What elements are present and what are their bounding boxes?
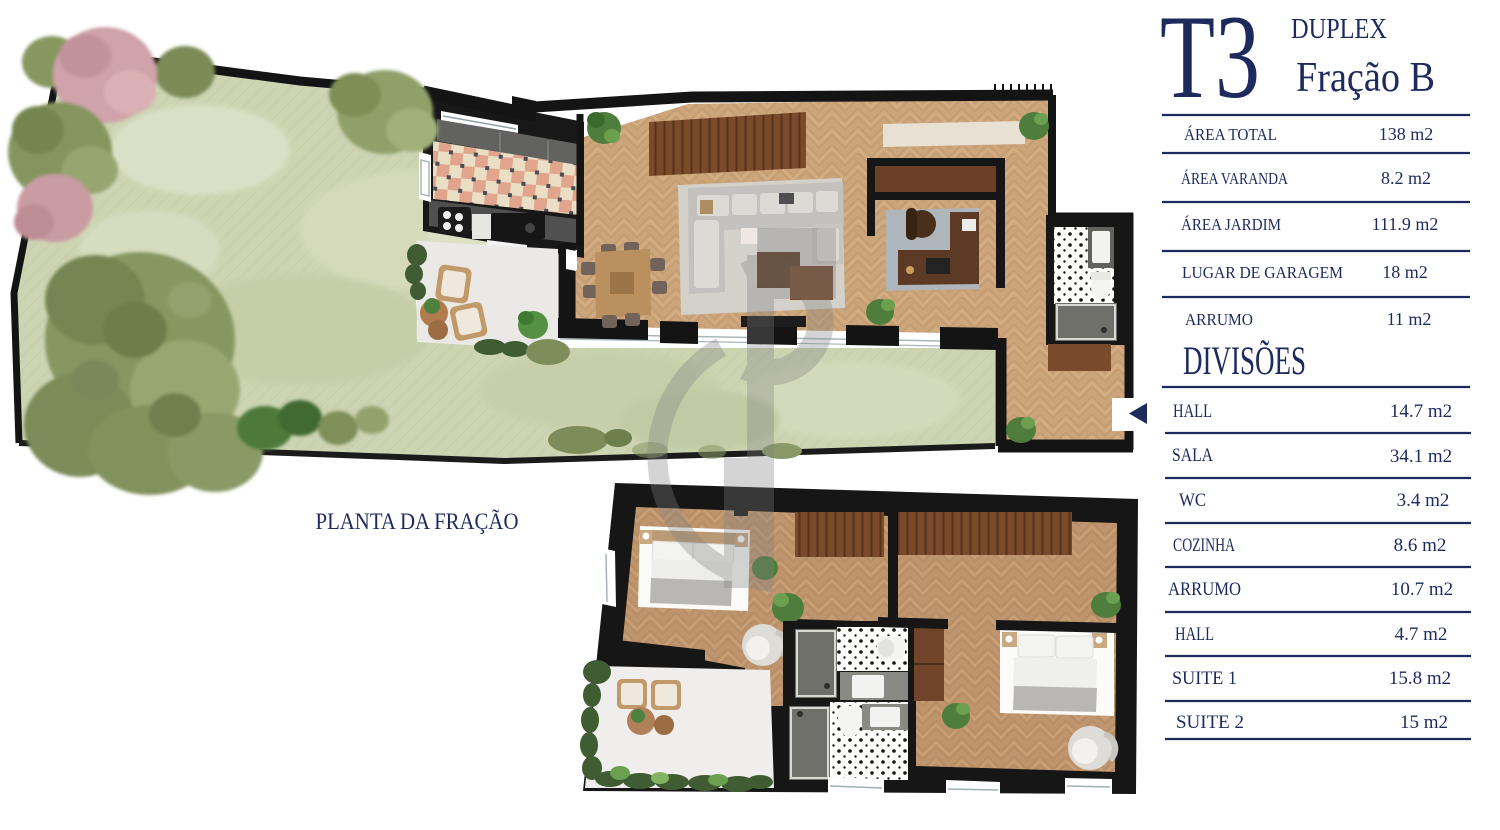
svg-text:SALA: SALA <box>1172 445 1213 466</box>
svg-text:11 m2: 11 m2 <box>1387 309 1432 329</box>
svg-text:8.2 m2: 8.2 m2 <box>1381 168 1431 188</box>
svg-text:ARRUMO: ARRUMO <box>1168 579 1241 600</box>
svg-text:18 m2: 18 m2 <box>1382 262 1428 282</box>
svg-text:Fração B: Fração B <box>1296 55 1435 101</box>
svg-text:DUPLEX: DUPLEX <box>1291 13 1387 45</box>
svg-text:ÁREA JARDIM: ÁREA JARDIM <box>1181 215 1281 234</box>
svg-text:ARRUMO: ARRUMO <box>1185 310 1253 329</box>
svg-text:HALL: HALL <box>1175 624 1214 645</box>
svg-text:14.7 m2: 14.7 m2 <box>1390 401 1452 422</box>
svg-text:ÁREA VARANDA: ÁREA VARANDA <box>1181 169 1289 188</box>
svg-text:138 m2: 138 m2 <box>1379 124 1434 144</box>
svg-text:4.7 m2: 4.7 m2 <box>1395 624 1448 645</box>
svg-text:111.9 m2: 111.9 m2 <box>1372 214 1439 234</box>
svg-text:HALL: HALL <box>1173 401 1212 422</box>
svg-text:PLANTA DA FRAÇÃO: PLANTA DA FRAÇÃO <box>316 509 519 534</box>
svg-text:WC: WC <box>1179 490 1206 511</box>
svg-text:8.6 m2: 8.6 m2 <box>1394 535 1447 556</box>
svg-text:SUITE 1: SUITE 1 <box>1172 668 1237 689</box>
svg-text:15 m2: 15 m2 <box>1400 712 1448 733</box>
svg-text:LUGAR DE GARAGEM: LUGAR DE GARAGEM <box>1182 263 1343 282</box>
svg-text:COZINHA: COZINHA <box>1173 535 1235 556</box>
svg-text:34.1 m2: 34.1 m2 <box>1390 446 1452 467</box>
svg-text:15.8 m2: 15.8 m2 <box>1389 668 1451 689</box>
svg-text:3.4 m2: 3.4 m2 <box>1397 490 1450 511</box>
svg-text:10.7 m2: 10.7 m2 <box>1391 579 1453 600</box>
svg-text:ÁREA TOTAL: ÁREA TOTAL <box>1184 125 1277 144</box>
svg-text:DIVISÕES: DIVISÕES <box>1183 338 1306 383</box>
svg-text:T3: T3 <box>1160 0 1260 123</box>
svg-text:SUITE 2: SUITE 2 <box>1176 712 1244 733</box>
